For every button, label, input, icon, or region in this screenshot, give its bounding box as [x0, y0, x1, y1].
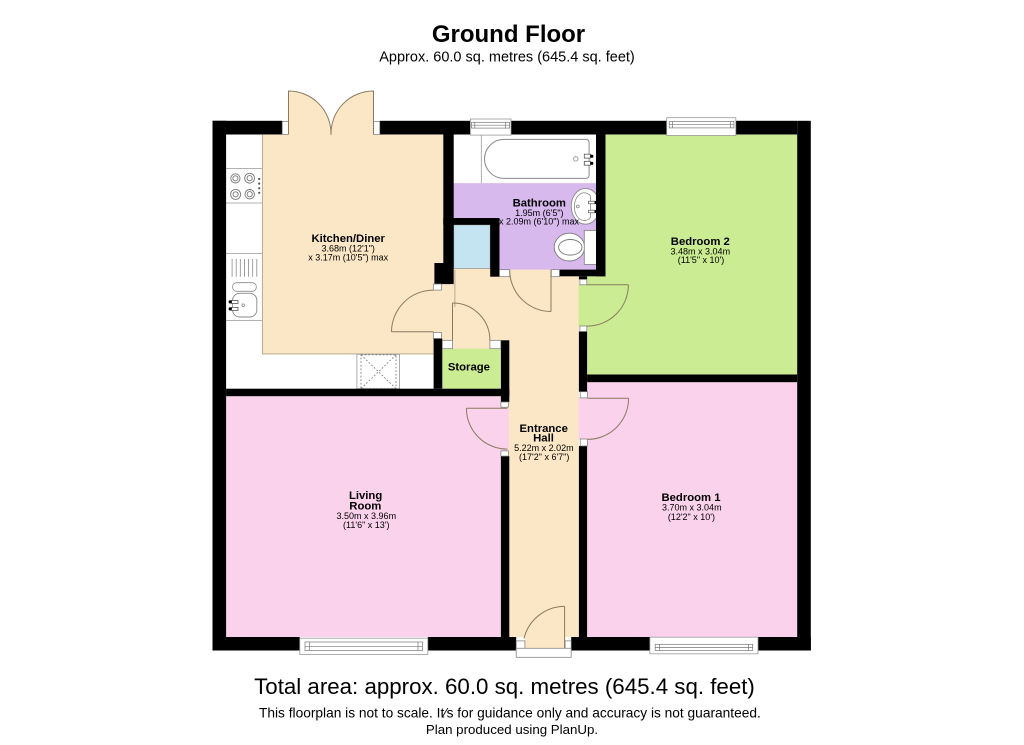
svg-text:x 3.17m (10'5") max: x 3.17m (10'5") max [308, 253, 388, 263]
svg-text:This floorplan is not to scale: This floorplan is not to scale. It⁄s for… [259, 706, 761, 721]
svg-text:Approx. 60.0 sq. metres (645.4: Approx. 60.0 sq. metres (645.4 sq. feet) [379, 50, 635, 66]
svg-text:(11'6" x 13'): (11'6" x 13') [343, 520, 390, 530]
svg-text:Ground Floor: Ground Floor [432, 21, 585, 48]
svg-text:Total area: approx. 60.0 sq. m: Total area: approx. 60.0 sq. metres (645… [254, 674, 755, 699]
svg-text:Storage: Storage [448, 362, 490, 374]
svg-text:(12'2" x 10'): (12'2" x 10') [668, 512, 715, 522]
svg-text:Plan produced using PlanUp.: Plan produced using PlanUp. [426, 722, 598, 737]
svg-text:x 2.09m (6'10") max: x 2.09m (6'10") max [499, 216, 579, 226]
svg-text:(17'2" x 6'7"): (17'2" x 6'7") [519, 452, 569, 462]
svg-text:(11'5" x 10'): (11'5" x 10') [678, 255, 725, 265]
